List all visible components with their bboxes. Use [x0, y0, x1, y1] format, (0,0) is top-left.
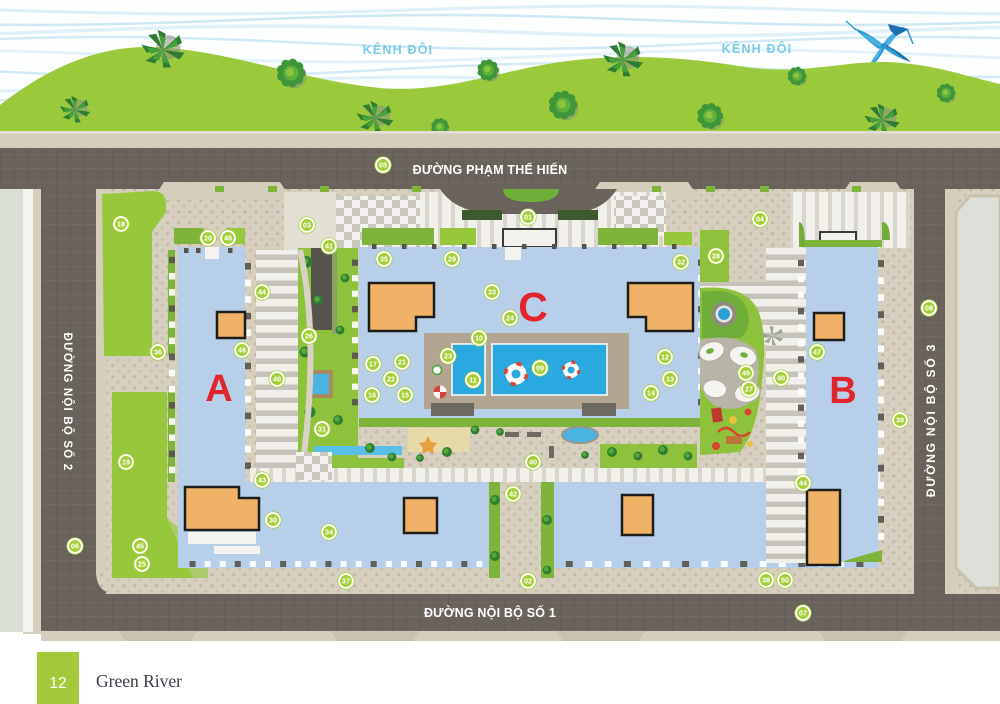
svg-text:16: 16 [368, 391, 376, 400]
svg-text:43: 43 [258, 476, 266, 485]
svg-text:33: 33 [488, 288, 496, 297]
svg-text:02: 02 [524, 577, 532, 586]
svg-text:29: 29 [448, 255, 456, 264]
svg-text:39: 39 [896, 416, 904, 425]
svg-text:42: 42 [509, 490, 517, 499]
svg-text:44: 44 [258, 288, 266, 297]
svg-text:Green River: Green River [96, 671, 182, 691]
svg-text:48: 48 [224, 234, 232, 243]
svg-text:08: 08 [925, 304, 933, 313]
svg-text:ĐƯỜNG PHẠM THẾ HIỂN: ĐƯỜNG PHẠM THẾ HIỂN [413, 162, 568, 177]
svg-text:21: 21 [398, 358, 406, 367]
svg-text:A: A [205, 368, 232, 410]
svg-text:49: 49 [742, 369, 750, 378]
svg-text:05: 05 [379, 161, 387, 170]
svg-text:44: 44 [799, 479, 807, 488]
svg-text:06: 06 [71, 542, 79, 551]
svg-text:11: 11 [469, 376, 477, 385]
svg-text:31: 31 [318, 425, 326, 434]
svg-text:12: 12 [661, 353, 669, 362]
svg-text:KÊNH ĐÔI: KÊNH ĐÔI [722, 41, 793, 56]
svg-text:13: 13 [666, 375, 674, 384]
svg-text:25: 25 [138, 560, 146, 569]
svg-text:40: 40 [273, 375, 281, 384]
svg-text:19: 19 [122, 458, 130, 467]
svg-text:04: 04 [756, 215, 764, 224]
svg-text:03: 03 [303, 221, 311, 230]
svg-text:28: 28 [712, 252, 720, 261]
svg-text:18: 18 [117, 220, 125, 229]
svg-text:01: 01 [524, 213, 532, 222]
svg-text:23: 23 [444, 352, 452, 361]
svg-text:KÊNH ĐÔI: KÊNH ĐÔI [363, 42, 434, 57]
svg-text:17: 17 [369, 360, 377, 369]
svg-text:24: 24 [506, 314, 514, 323]
svg-text:20: 20 [204, 234, 212, 243]
svg-text:C: C [518, 284, 548, 330]
svg-text:14: 14 [647, 389, 655, 398]
svg-text:27: 27 [745, 385, 753, 394]
svg-text:41: 41 [325, 242, 333, 251]
svg-text:12: 12 [49, 675, 66, 692]
svg-text:35: 35 [380, 255, 388, 264]
svg-text:32: 32 [677, 258, 685, 267]
svg-text:22: 22 [387, 375, 395, 384]
svg-text:37: 37 [342, 577, 350, 586]
svg-text:26: 26 [305, 332, 313, 341]
svg-text:34: 34 [325, 528, 333, 537]
svg-text:40: 40 [777, 374, 785, 383]
svg-text:40: 40 [529, 458, 537, 467]
svg-text:ĐƯỜNG NỘI BỘ SỐ 3: ĐƯỜNG NỘI BỘ SỐ 3 [923, 343, 938, 497]
svg-text:47: 47 [813, 348, 821, 357]
svg-text:ĐƯỜNG NỘI BỘ SỐ 2: ĐƯỜNG NỘI BỘ SỐ 2 [61, 333, 75, 472]
svg-text:46: 46 [238, 346, 246, 355]
svg-text:09: 09 [536, 364, 544, 373]
svg-text:15: 15 [401, 391, 409, 400]
svg-text:10: 10 [475, 334, 483, 343]
svg-text:30: 30 [269, 516, 277, 525]
svg-text:ĐƯỜNG NỘI BỘ SỐ 1: ĐƯỜNG NỘI BỘ SỐ 1 [424, 605, 556, 620]
svg-text:45: 45 [136, 542, 144, 551]
svg-text:50: 50 [781, 576, 789, 585]
svg-text:B: B [829, 370, 856, 412]
svg-text:07: 07 [799, 609, 807, 618]
svg-text:36: 36 [154, 348, 162, 357]
svg-text:38: 38 [762, 576, 770, 585]
